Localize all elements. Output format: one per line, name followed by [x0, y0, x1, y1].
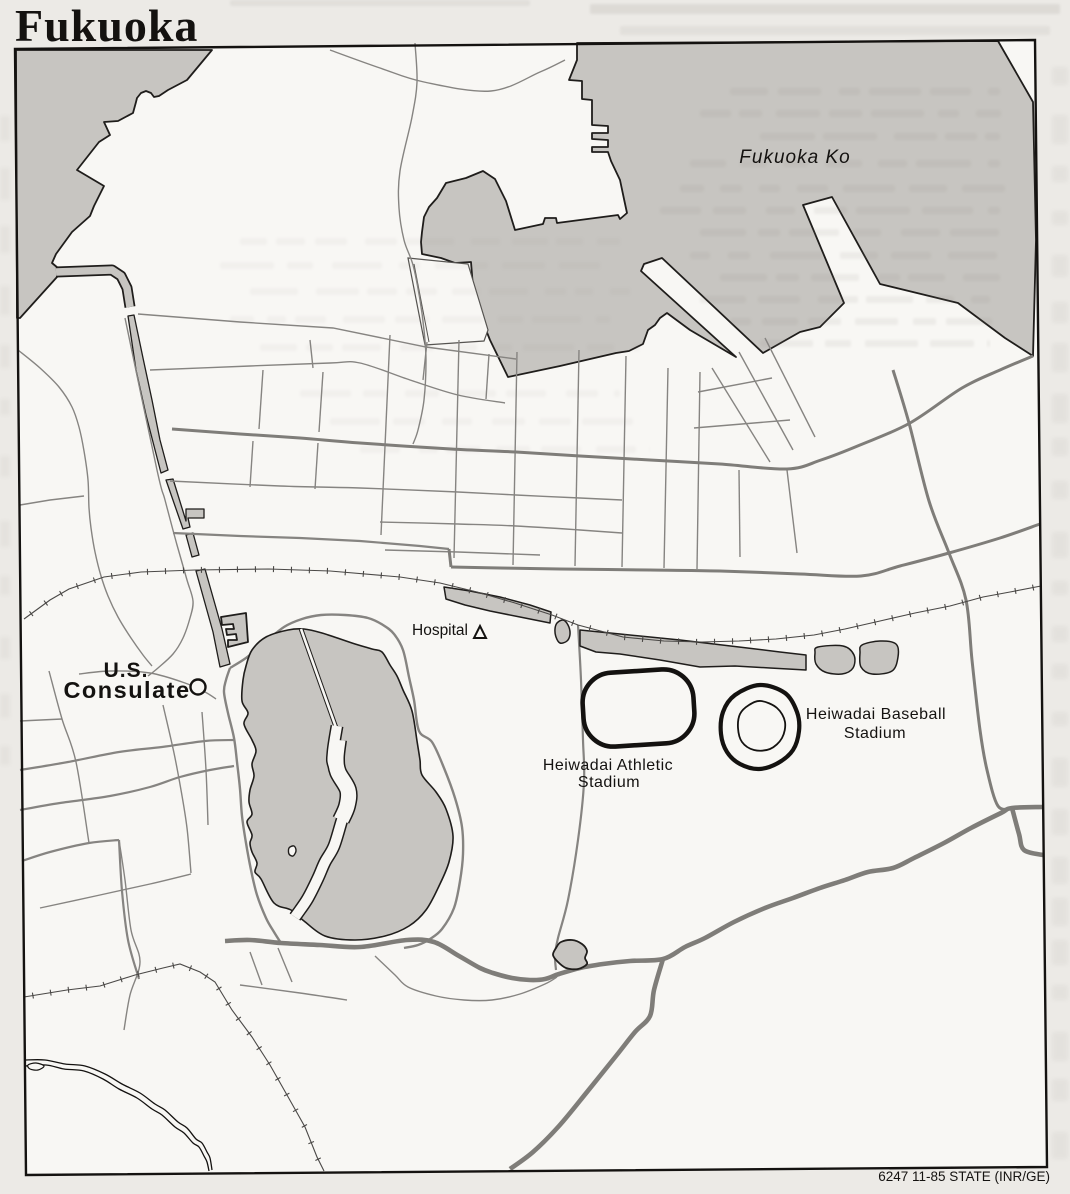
svg-text:Hospital: Hospital: [412, 622, 468, 639]
svg-text:Heiwadai Athletic: Heiwadai Athletic: [543, 757, 673, 774]
svg-text:6247 11-85 STATE (INR/GE): 6247 11-85 STATE (INR/GE): [878, 1169, 1050, 1184]
svg-text:Fukuoka: Fukuoka: [15, 0, 198, 51]
svg-text:Stadium: Stadium: [578, 774, 640, 791]
svg-text:Heiwadai Baseball: Heiwadai Baseball: [806, 706, 946, 723]
svg-text:Consulate: Consulate: [63, 677, 190, 703]
svg-text:Fukuoka Ko: Fukuoka Ko: [739, 147, 850, 168]
svg-text:Stadium: Stadium: [844, 725, 906, 742]
